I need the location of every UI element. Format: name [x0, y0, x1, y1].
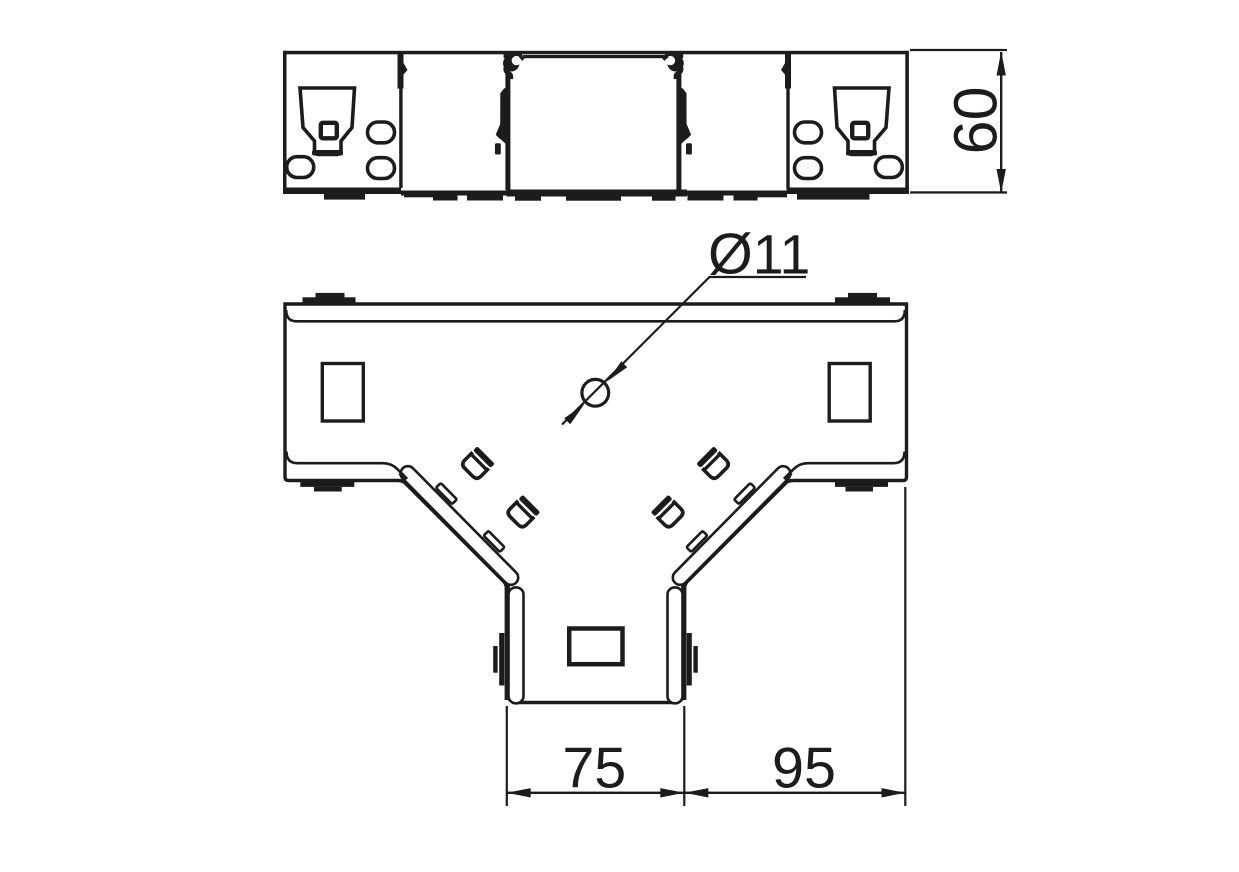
- svg-text:Ø11: Ø11: [708, 223, 810, 287]
- svg-text:75: 75: [562, 736, 626, 800]
- svg-text:95: 95: [772, 736, 836, 800]
- svg-text:60: 60: [941, 86, 1009, 154]
